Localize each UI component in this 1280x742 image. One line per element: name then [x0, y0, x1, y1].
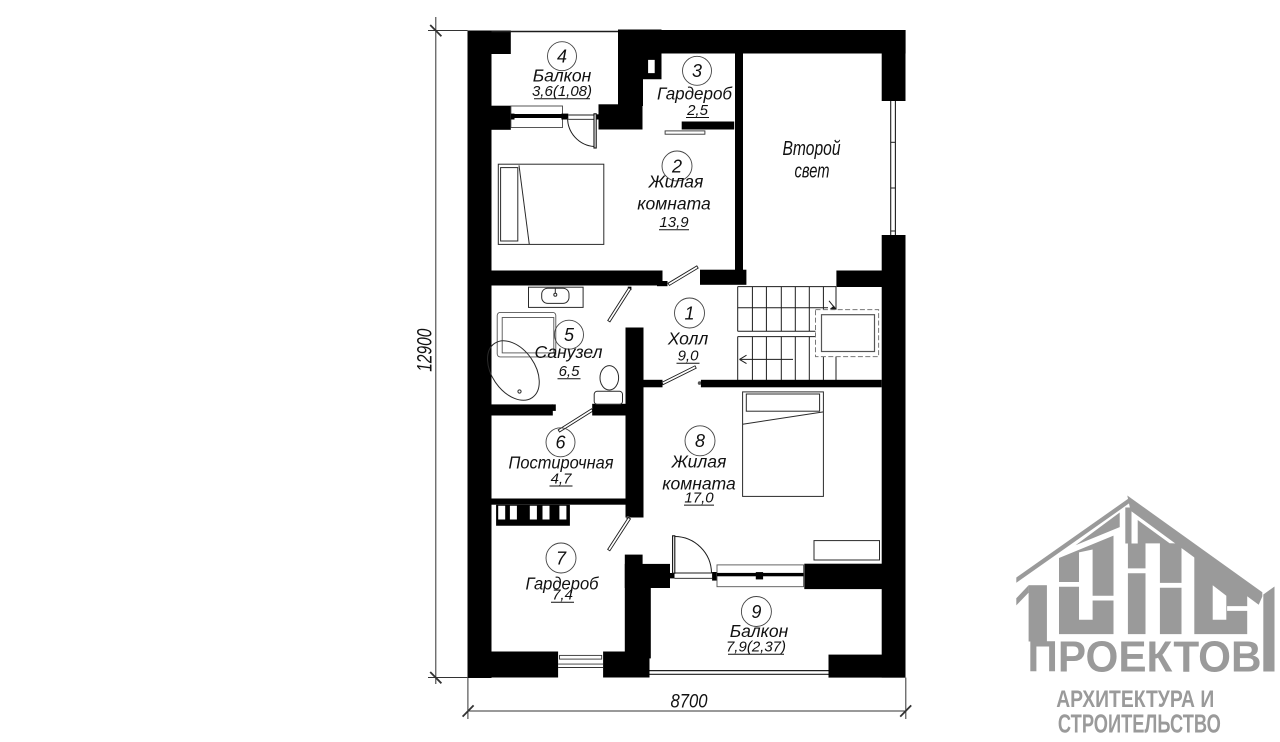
svg-text:4: 4 — [557, 47, 567, 67]
svg-text:Санузел: Санузел — [535, 342, 603, 362]
svg-text:свет: свет — [795, 160, 830, 183]
svg-text:13,9: 13,9 — [659, 214, 689, 231]
svg-text:Жилая: Жилая — [648, 172, 704, 192]
svg-text:8700: 8700 — [671, 691, 708, 713]
svg-text:7,4: 7,4 — [552, 587, 573, 604]
svg-text:3: 3 — [692, 61, 702, 81]
svg-text:9: 9 — [751, 602, 761, 622]
svg-text:Второй: Второй — [783, 137, 841, 160]
svg-text:2,5: 2,5 — [686, 102, 709, 119]
svg-text:1: 1 — [684, 303, 694, 323]
svg-text:7: 7 — [556, 548, 567, 568]
svg-text:Гардероб: Гардероб — [657, 84, 733, 104]
svg-text:9,0: 9,0 — [678, 348, 700, 365]
svg-text:17,0: 17,0 — [684, 489, 714, 506]
svg-text:Холл: Холл — [667, 328, 709, 348]
svg-text:4,7: 4,7 — [551, 470, 573, 487]
svg-text:7,9(2,37): 7,9(2,37) — [726, 639, 786, 656]
svg-text:3,6(1,08): 3,6(1,08) — [532, 83, 592, 100]
svg-text:Жилая: Жилая — [671, 451, 727, 471]
svg-text:6: 6 — [555, 433, 566, 453]
svg-text:8: 8 — [695, 431, 705, 451]
svg-text:6,5: 6,5 — [559, 363, 581, 380]
svg-text:комната: комната — [637, 194, 711, 214]
svg-text:СТРОИТЕЛЬСТВО: СТРОИТЕЛЬСТВО — [1058, 709, 1221, 739]
svg-text:ПРОЕКТОВ: ПРОЕКТОВ — [1028, 633, 1262, 682]
svg-text:12900: 12900 — [413, 328, 436, 371]
